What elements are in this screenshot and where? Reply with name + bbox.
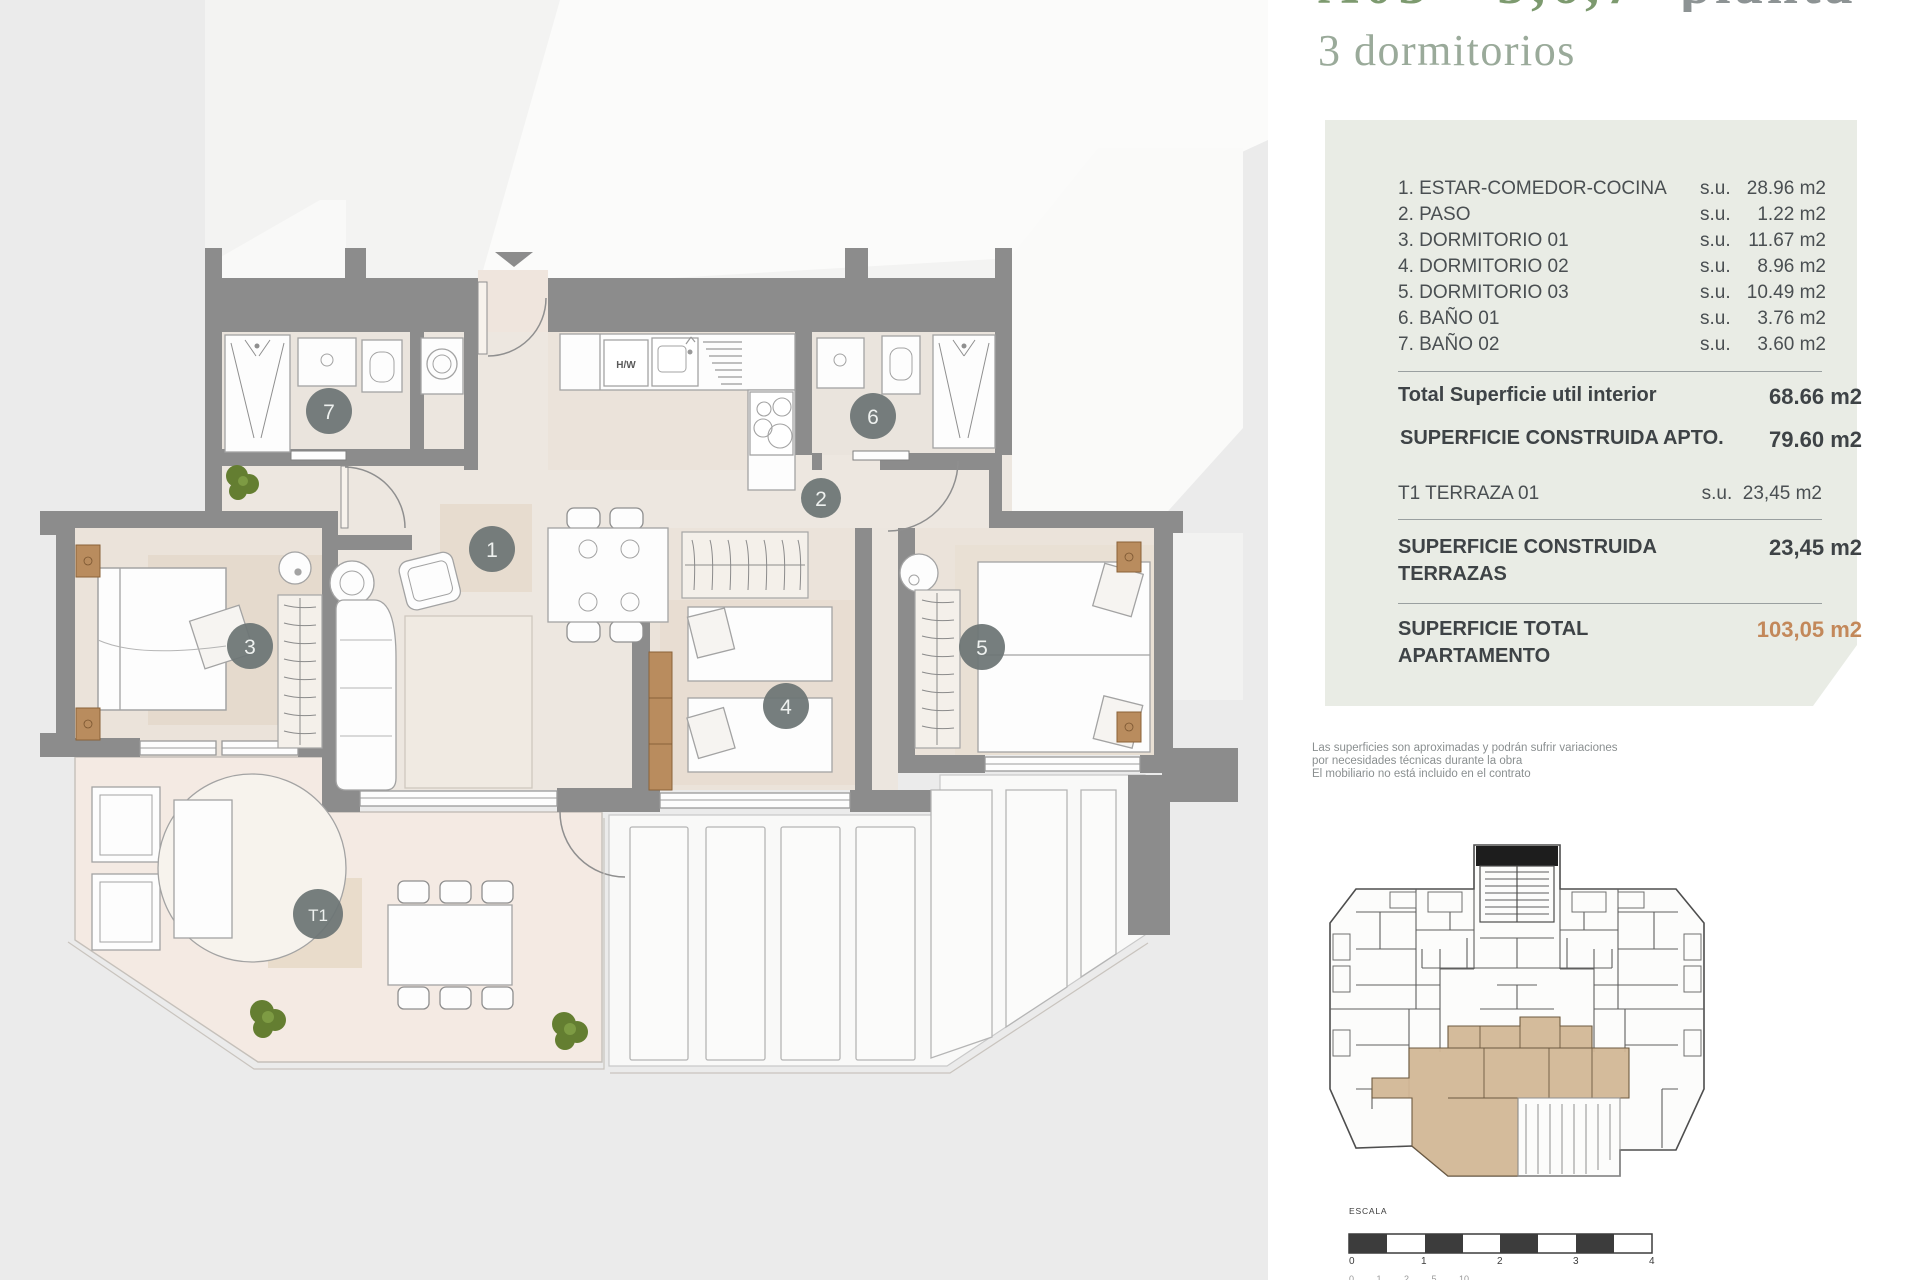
svg-text:ESCALA: ESCALA (1349, 1206, 1387, 1216)
svg-text:6: 6 (867, 406, 879, 429)
svg-text:7: 7 (323, 401, 335, 424)
svg-text:5: 5 (976, 637, 988, 660)
svg-text:3: 3 (244, 636, 256, 659)
svg-text:1: 1 (486, 539, 498, 562)
svg-text:4: 4 (780, 696, 792, 719)
svg-text:2: 2 (815, 488, 827, 511)
svg-text:T1: T1 (308, 906, 328, 925)
svg-text:H/W: H/W (616, 360, 636, 371)
